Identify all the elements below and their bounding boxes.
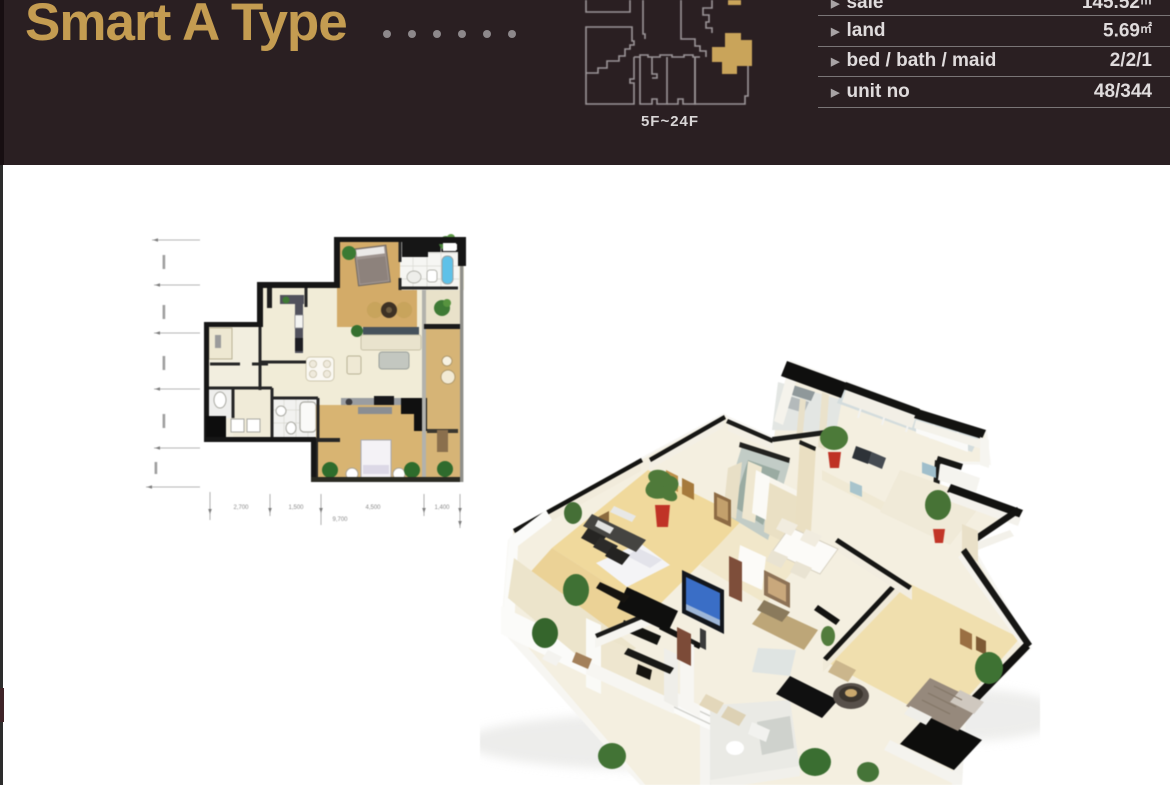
svg-text:1,400: 1,400 [434, 505, 450, 511]
svg-text:4,500: 4,500 [365, 505, 381, 511]
svg-text:9,700: 9,700 [332, 517, 348, 523]
svg-text:1,500: 1,500 [288, 505, 304, 511]
svg-text:2,700: 2,700 [233, 505, 249, 511]
